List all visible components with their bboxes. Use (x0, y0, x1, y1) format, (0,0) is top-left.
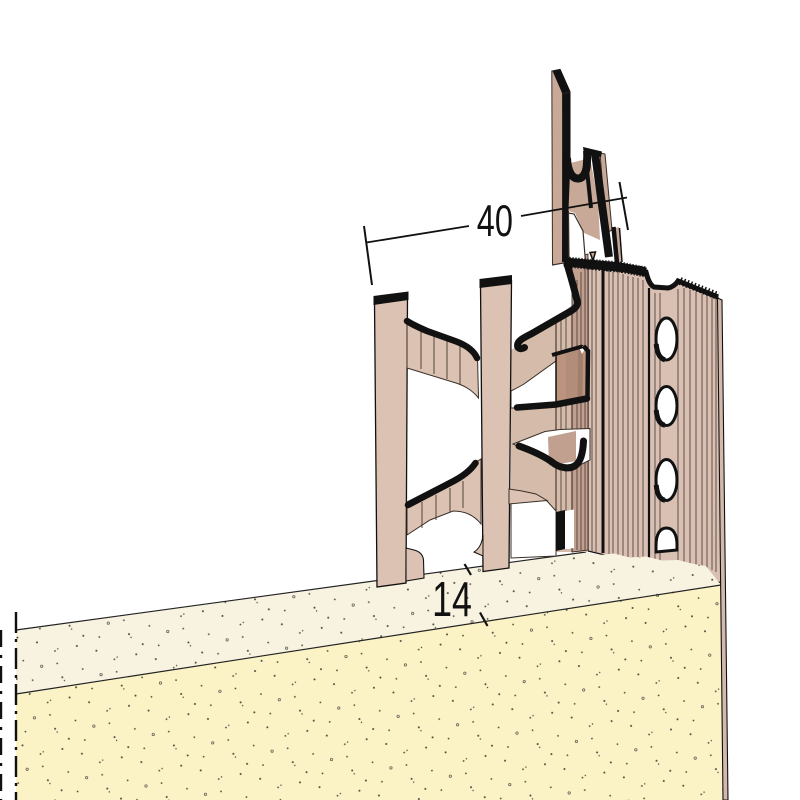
svg-text:40: 40 (477, 197, 513, 246)
svg-text:14: 14 (432, 573, 472, 628)
